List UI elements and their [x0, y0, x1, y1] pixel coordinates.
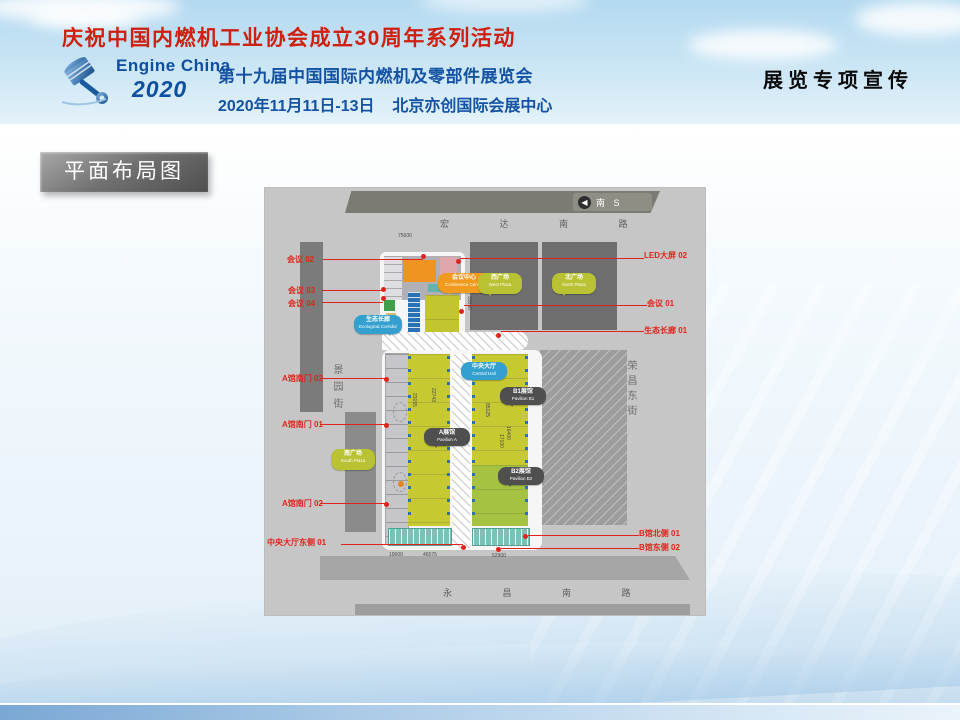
ad-label: 中央大厅东侧 01: [267, 537, 326, 548]
leader-line: [323, 259, 423, 260]
measurement: 17100: [498, 434, 504, 448]
leader-line: [501, 331, 644, 332]
engine-china-logo: Engine China 2020: [58, 56, 231, 108]
leader-line: [528, 535, 639, 536]
piston-icon: [58, 56, 112, 108]
measurement: 23155: [411, 393, 417, 407]
marker-dot: [456, 259, 461, 264]
marker-dot: [461, 545, 466, 550]
ad-label: B馆北侧 01: [639, 528, 680, 539]
central-hall-strip-east: [472, 528, 530, 546]
booth-row: [408, 356, 411, 524]
ad-label: LED大屏 02: [644, 250, 687, 261]
eco-corridor-walkway: [382, 332, 528, 350]
callout-pavilion-a: A展馆 Pavilion A: [424, 428, 470, 446]
ad-label: 会议 02: [287, 254, 314, 265]
leader-line: [320, 503, 386, 504]
ad-label: A馆南门 02: [282, 498, 323, 509]
ad-label: 会议 03: [288, 285, 315, 296]
ad-label: A馆南门 02: [282, 373, 323, 384]
callout-tail: [432, 441, 440, 452]
callout-pavilion-b1: B1展馆 Pavilion B1: [500, 387, 546, 405]
east-city-block: [540, 350, 627, 525]
expo-title: 第十九届中国国际内燃机及零部件展览会: [218, 62, 552, 87]
measurement: 46575: [423, 552, 437, 558]
cloud: [420, 0, 590, 12]
leader-line: [341, 544, 463, 545]
street-name-west: 景园街: [329, 364, 344, 415]
cloud: [855, 2, 960, 36]
marker-dot: [523, 534, 528, 539]
bottom-bar: [0, 703, 960, 720]
upper-exhibit-block: [425, 295, 459, 332]
callout-tail: [486, 289, 494, 300]
ad-label: B馆东侧 02: [639, 542, 680, 553]
callout-tail: [446, 288, 454, 299]
banner-title: 庆祝中国内燃机工业协会成立30周年系列活动: [62, 22, 516, 52]
marker-dot: [459, 309, 464, 314]
conference-center-building: [403, 260, 436, 282]
slide: 庆祝中国内燃机工业协会成立30周年系列活动: [0, 0, 960, 720]
marker-dot: [384, 423, 389, 428]
logo-wordmark: Engine China: [116, 56, 231, 76]
measurement: 85125: [484, 403, 490, 417]
orange-spot: [398, 481, 404, 487]
measurement: 75600: [398, 233, 412, 239]
callout-tail: [508, 400, 516, 411]
expo-date-venue: 2020年11月11日-13日 北京亦创国际会展中心: [218, 92, 552, 116]
header-sky: 庆祝中国内燃机工业协会成立30周年系列活动: [0, 0, 960, 124]
callout-tail: [386, 329, 394, 340]
marker-dot: [384, 502, 389, 507]
callout-tail: [506, 480, 514, 491]
callout-north-plaza: 北广场 North Plaza: [552, 273, 596, 294]
leader-line: [464, 305, 647, 306]
callout-tail: [469, 375, 477, 386]
slide-body: 平面布局图 ◀ 南 S 宏 达 南 路 永 昌 南 路 景园街 荣昌东街: [0, 124, 960, 720]
leader-line: [460, 258, 644, 259]
callout-west-plaza: 西广场 West Plaza: [478, 273, 522, 294]
road-name-south: 永 昌 南 路: [443, 586, 655, 599]
leader-line: [322, 290, 383, 291]
leader-line: [501, 548, 639, 549]
south-edge-block: [355, 604, 690, 615]
ad-label: 会议 04: [288, 298, 315, 309]
measurement: 16400: [505, 426, 511, 440]
compass: ◀ 南 S: [573, 193, 652, 211]
ad-label: A馆南门 01: [282, 419, 323, 430]
marker-dot: [381, 296, 386, 301]
walkway-strip: [408, 292, 420, 332]
marker-dot: [384, 377, 389, 382]
expo-info: 第十九届中国国际内燃机及零部件展览会 2020年11月11日-13日 北京亦创国…: [218, 62, 552, 116]
leader-line: [320, 378, 386, 379]
section-title: 平面布局图: [40, 152, 208, 192]
leader-line: [320, 424, 386, 425]
cloud: [688, 30, 838, 60]
compass-label: 南 S: [596, 196, 623, 209]
west-corridor-building: [386, 354, 408, 544]
callout-south-plaza: 南广场 South Plaza: [331, 449, 375, 470]
ad-label: 生态长廊 01: [644, 325, 687, 336]
west-city-block: [300, 242, 323, 412]
callout-eco-corridor: 生态长廊 Ecological Corridor: [354, 315, 402, 334]
leader-line: [322, 302, 383, 303]
measurement: 33030: [466, 296, 472, 310]
booth-row: [525, 356, 528, 524]
marker-dot: [381, 287, 386, 292]
measurement: 52900: [492, 553, 506, 559]
conference-rooms: [384, 256, 402, 300]
measurement: 22743: [430, 388, 436, 402]
callout-central-hall: 中央大厅 Central Hall: [461, 362, 507, 380]
logo-year: 2020: [132, 76, 231, 103]
callout-pavilion-b2: B2展馆 Pavilion B2: [498, 467, 544, 485]
marker-dot: [496, 547, 501, 552]
green-annex: [384, 300, 395, 311]
measurement: 19600: [389, 552, 403, 558]
central-corridor: [452, 354, 470, 548]
floor-plan-map: ◀ 南 S 宏 达 南 路 永 昌 南 路 景园街 荣昌东街: [265, 188, 705, 615]
turning-circle: [393, 402, 407, 422]
ad-label: 会议 01: [647, 298, 674, 309]
south-road-block: [320, 556, 690, 580]
marker-dot: [421, 254, 426, 259]
road-name-north: 宏 达 南 路: [440, 217, 652, 230]
southwest-city-block: [345, 412, 376, 532]
callout-tail: [560, 289, 568, 300]
compass-arrow-icon: ◀: [578, 196, 591, 209]
header-right-label: 展览专项宣传: [763, 64, 913, 93]
marker-dot: [496, 333, 501, 338]
callout-tail: [339, 465, 347, 476]
